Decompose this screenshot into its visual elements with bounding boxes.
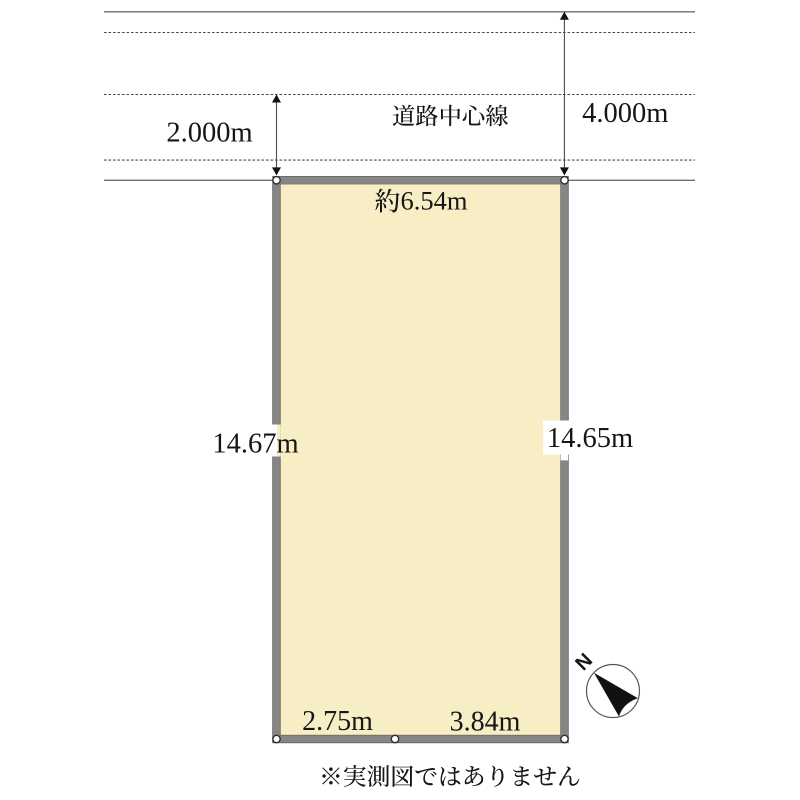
svg-text:14.67m: 14.67m xyxy=(212,429,298,460)
svg-text:3.84m: 3.84m xyxy=(450,707,521,738)
svg-text:2.000m: 2.000m xyxy=(166,118,252,149)
svg-text:4.000m: 4.000m xyxy=(582,98,668,129)
svg-text:14.65m: 14.65m xyxy=(547,423,633,454)
svg-text:6.54m: 6.54m xyxy=(401,186,468,216)
svg-text:2.75m: 2.75m xyxy=(302,706,373,737)
